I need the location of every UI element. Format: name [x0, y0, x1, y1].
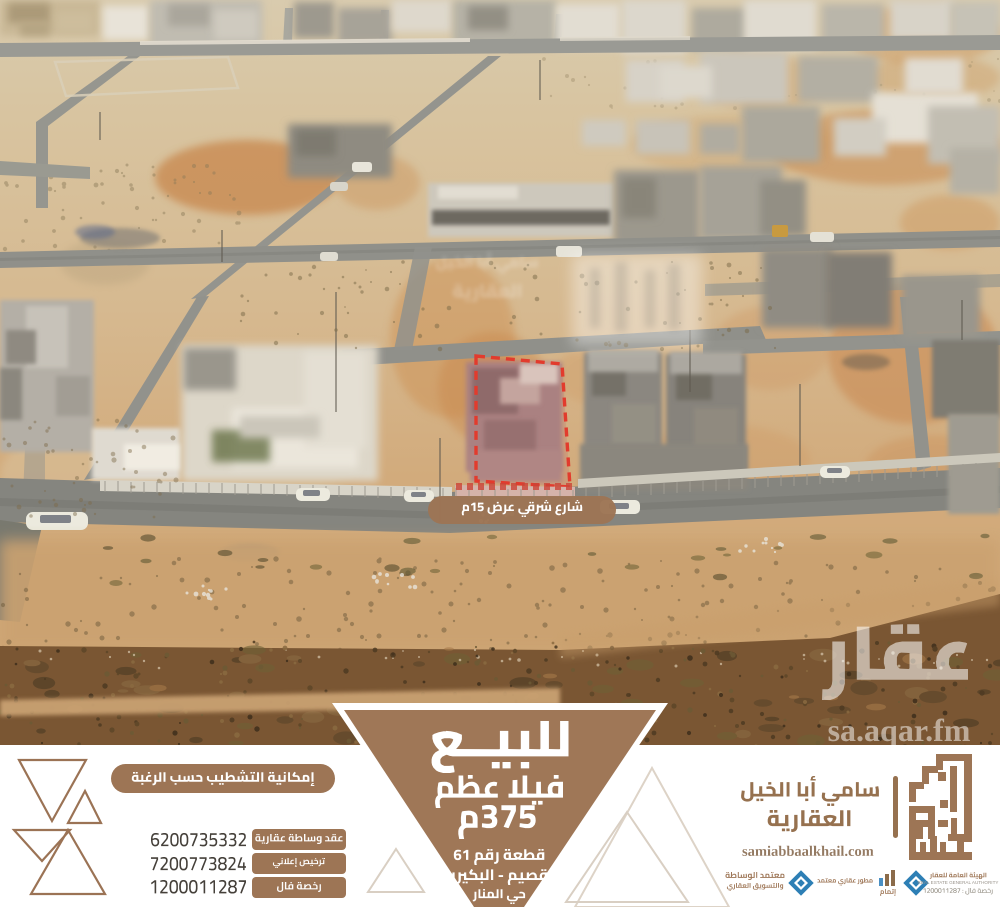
- svg-text:REAL ESTATE GENERAL AUTHORITY: REAL ESTATE GENERAL AUTHORITY: [918, 880, 999, 885]
- svg-text:sa.aqar.fm: sa.aqar.fm: [828, 712, 971, 748]
